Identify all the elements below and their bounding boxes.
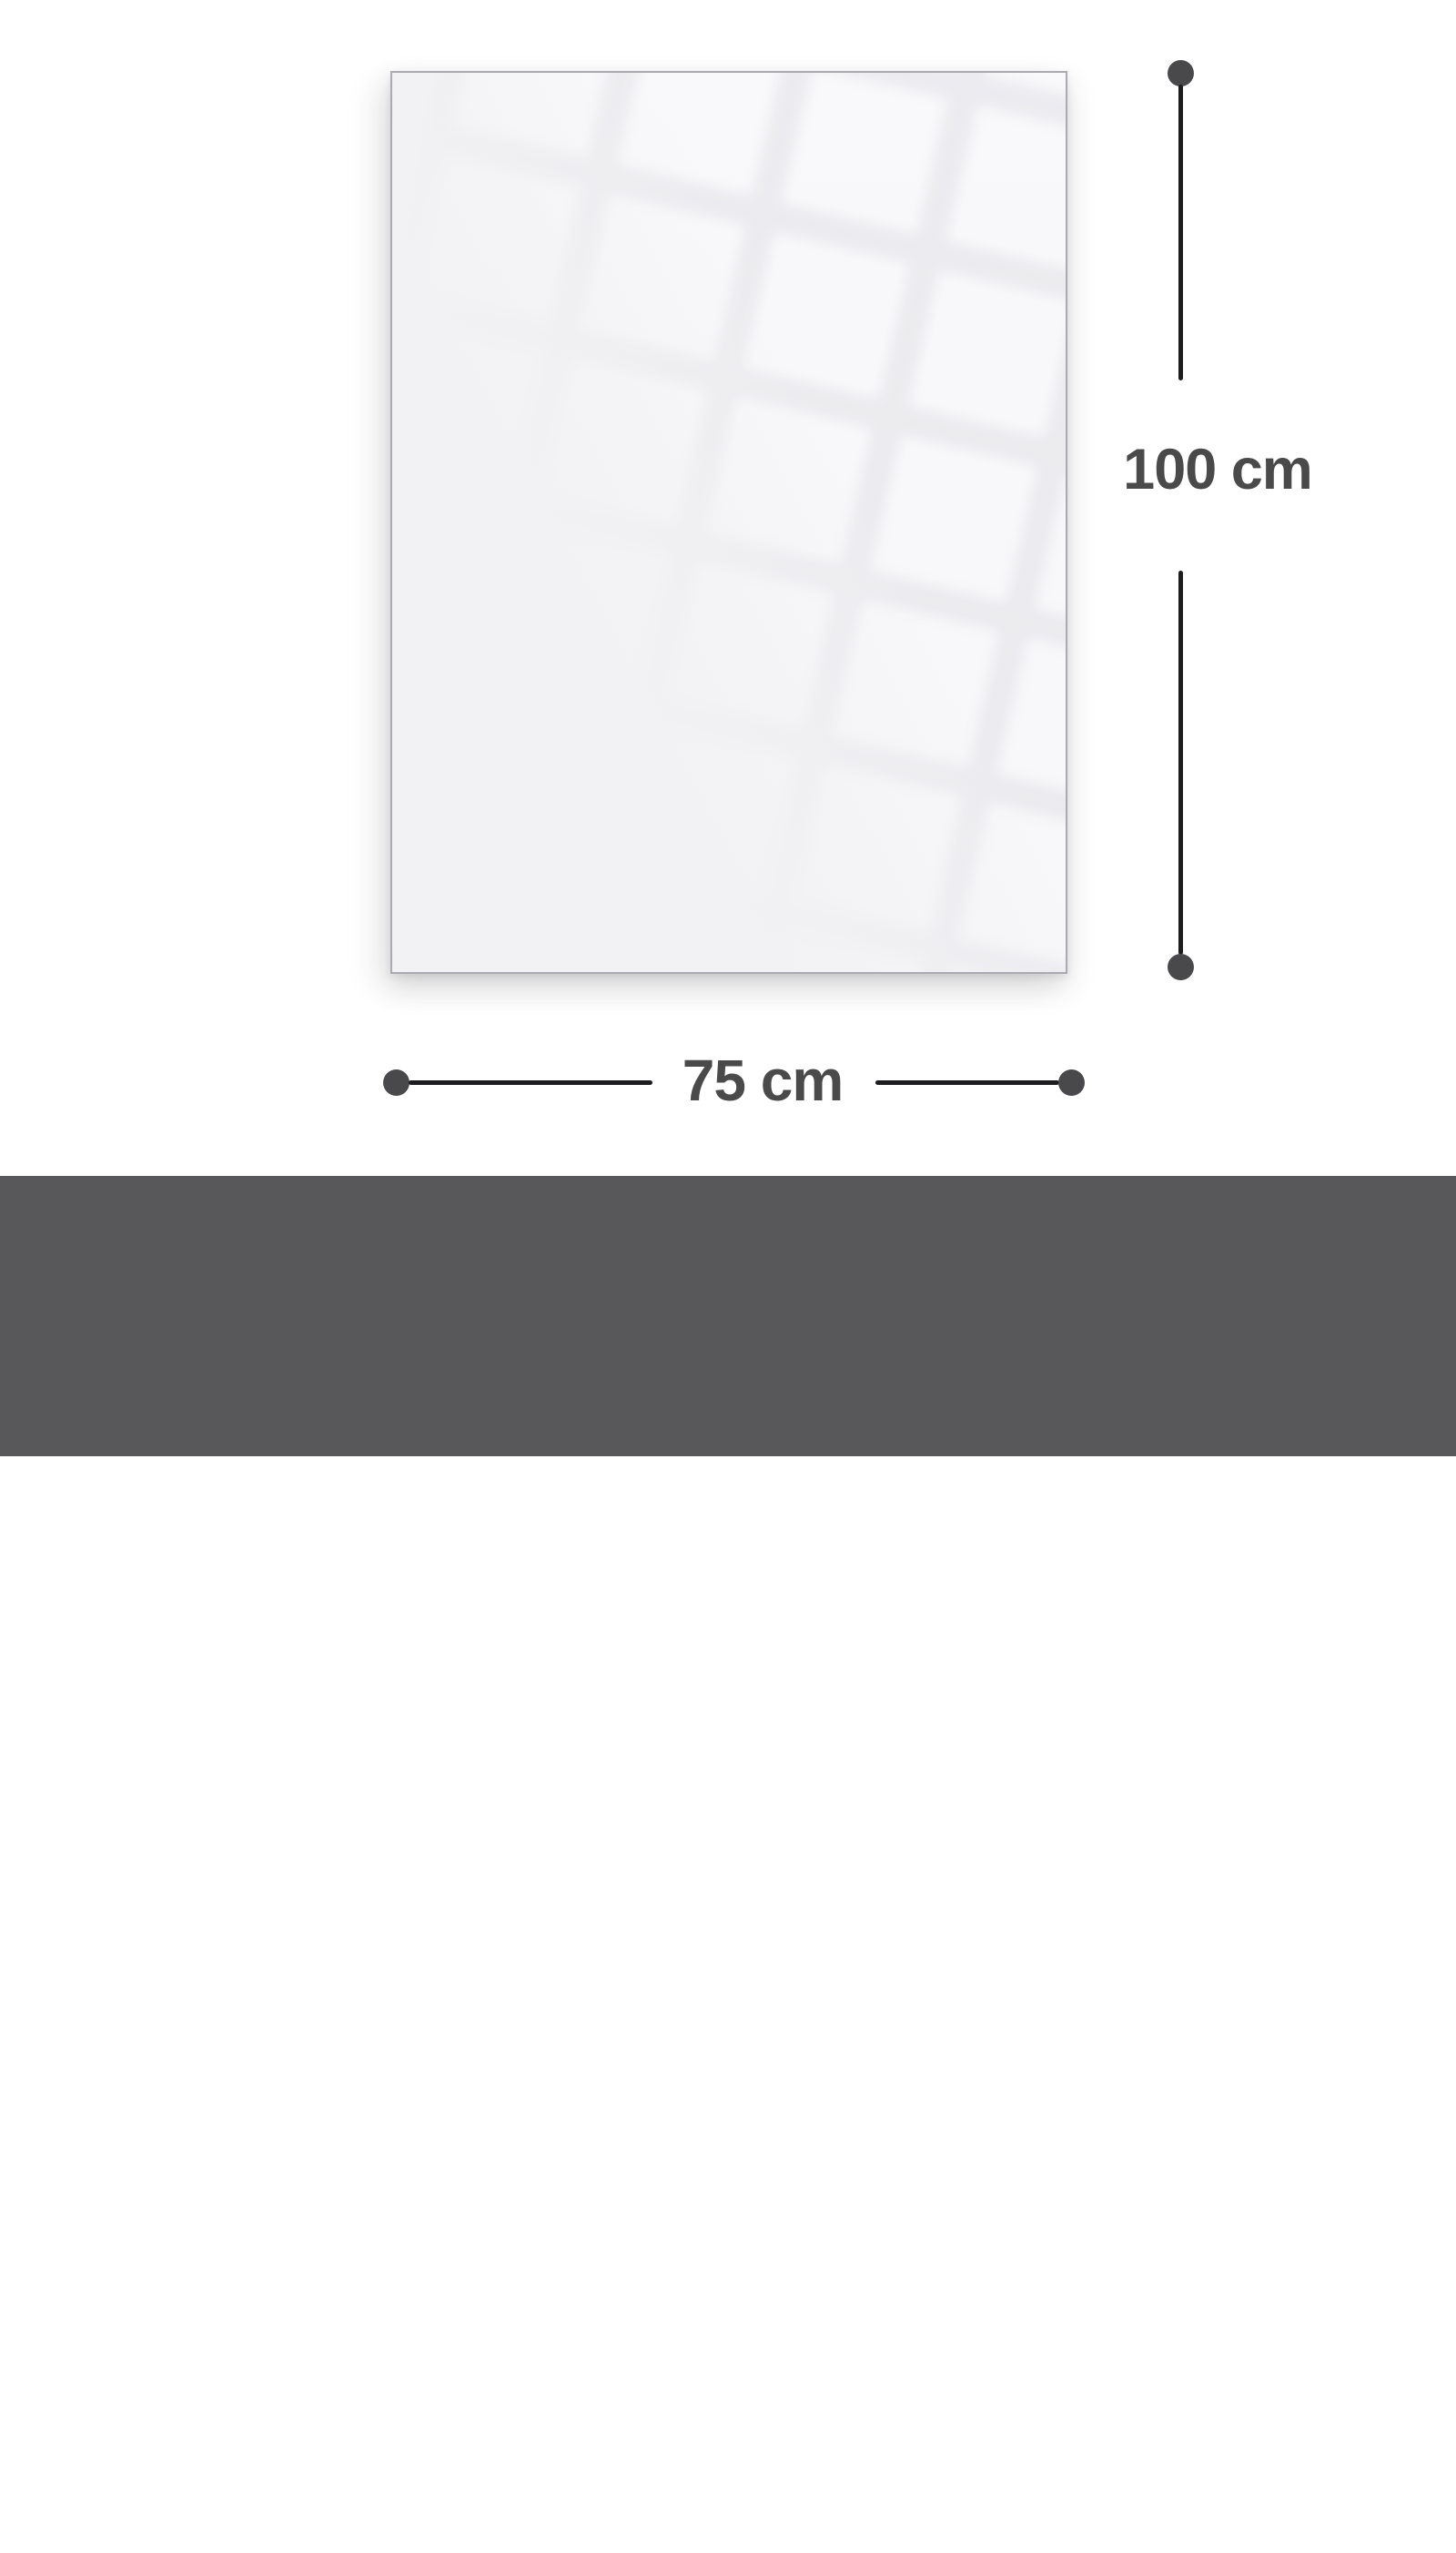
product-panel: [390, 71, 1067, 974]
width-dimension-line-right: [875, 1080, 1059, 1085]
size-banner-value: 75 x 100 cm: [139, 2484, 487, 2549]
panel-reflection-fade: [390, 71, 1067, 974]
size-banner-caption: Gesamtgrösse | Size: [143, 2410, 669, 2466]
width-dimension-label: 75 cm: [626, 1051, 899, 1109]
width-dimension-left-dot: [383, 1069, 409, 1096]
width-dimension-line-left: [409, 1080, 652, 1085]
height-dimension-top-dot: [1168, 60, 1194, 86]
height-dimension-line-upper: [1178, 85, 1183, 380]
height-dimension-line-lower: [1178, 571, 1183, 955]
size-banner: Gesamtgrösse | Size 75 x 100 cm: [0, 1176, 1456, 1456]
height-dimension-bottom-dot: [1168, 954, 1194, 980]
width-dimension-right-dot: [1058, 1069, 1085, 1096]
height-dimension-label: 100 cm: [1081, 441, 1354, 499]
